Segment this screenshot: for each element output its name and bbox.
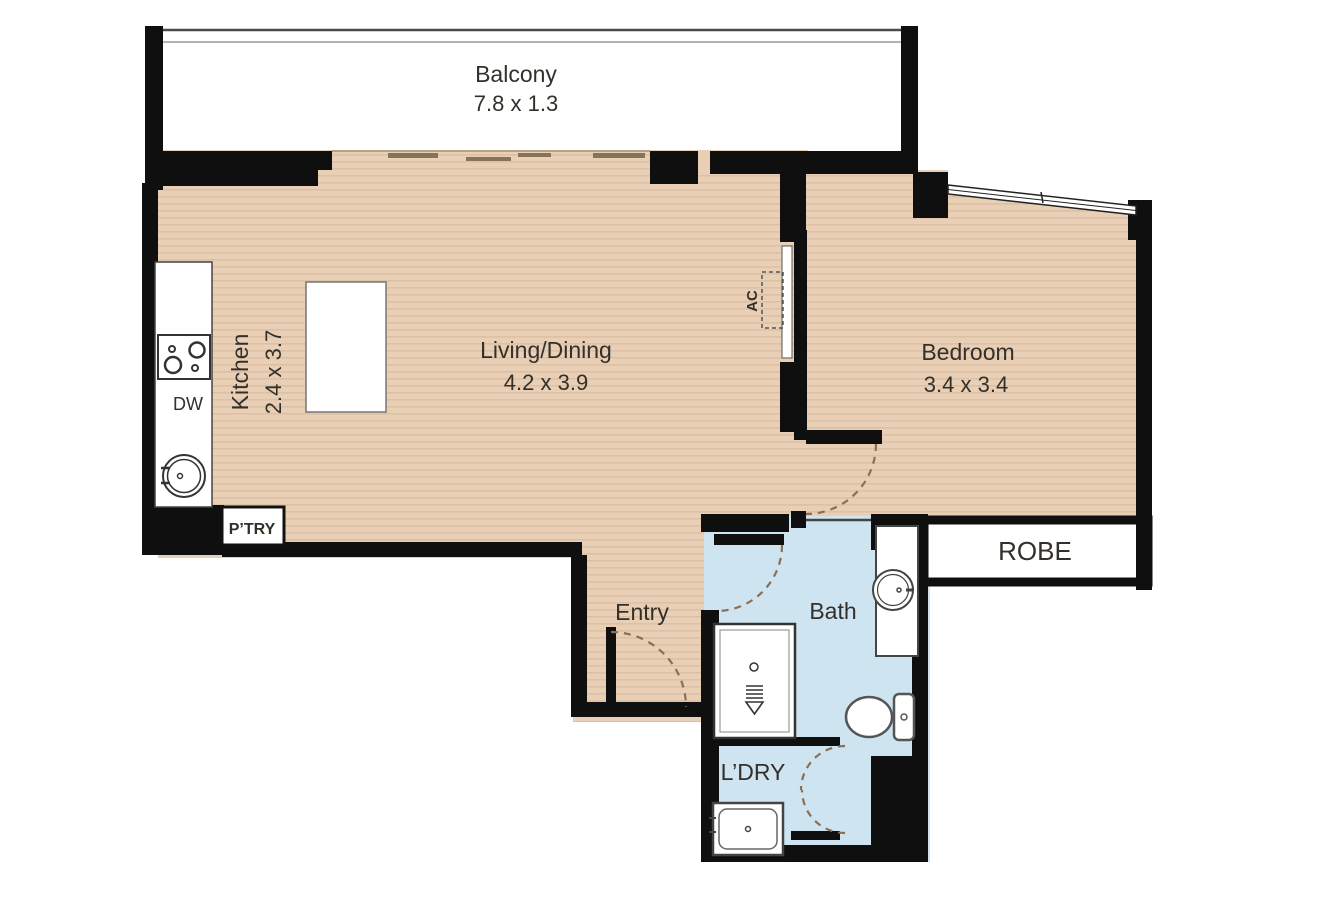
balcony-railing	[163, 30, 901, 42]
bedroom-label: Bedroom	[921, 339, 1014, 365]
pantry-label: P’TRY	[229, 521, 276, 538]
balcony-label: Balcony	[475, 61, 557, 87]
dishwasher-label: DW	[173, 394, 203, 414]
balcony-dims: 7.8 x 1.3	[474, 91, 558, 116]
entry-label: Entry	[615, 599, 669, 625]
floor-plan-drawing: Balcony 7.8 x 1.3 Living/Dining 4.2 x 3.…	[0, 0, 1320, 910]
living-dining-label: Living/Dining	[480, 337, 612, 363]
living-dining-dims: 4.2 x 3.9	[504, 370, 588, 395]
laundry-tub-icon	[709, 803, 783, 855]
robe-label: ROBE	[998, 536, 1072, 566]
floor-plan-page: Balcony 7.8 x 1.3 Living/Dining 4.2 x 3.…	[0, 0, 1320, 910]
kitchen-island	[306, 282, 386, 412]
floor-areas	[158, 150, 1140, 862]
kitchen-dims: 2.4 x 3.7	[261, 330, 286, 414]
vanity	[873, 526, 918, 656]
basin-icon	[873, 570, 914, 610]
ac-label: AC	[744, 290, 761, 312]
toilet-icon	[846, 694, 914, 740]
top-wall-notch	[698, 151, 710, 174]
laundry-label: L’DRY	[721, 759, 786, 785]
shower-icon	[714, 624, 795, 738]
bedroom-dims: 3.4 x 3.4	[924, 372, 1008, 397]
bath-label: Bath	[809, 598, 856, 624]
kitchen-label: Kitchen	[227, 334, 253, 411]
cooktop-icon	[158, 335, 210, 379]
